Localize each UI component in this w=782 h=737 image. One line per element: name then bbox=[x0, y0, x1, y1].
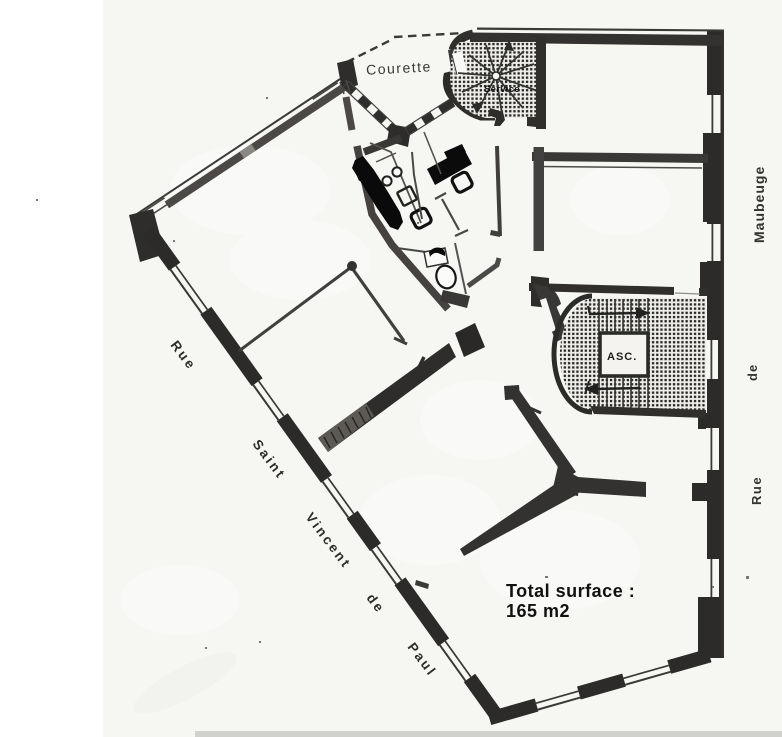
svg-text:de: de bbox=[745, 364, 760, 381]
svg-text:Maubeuge: Maubeuge bbox=[751, 166, 767, 243]
svg-text:Rue: Rue bbox=[749, 476, 764, 505]
svg-text:165 m2: 165 m2 bbox=[506, 601, 570, 621]
svg-text:Total surface :: Total surface : bbox=[506, 581, 635, 601]
svg-text:ASC.: ASC. bbox=[607, 351, 637, 363]
svg-text:Service: Service bbox=[484, 84, 520, 95]
